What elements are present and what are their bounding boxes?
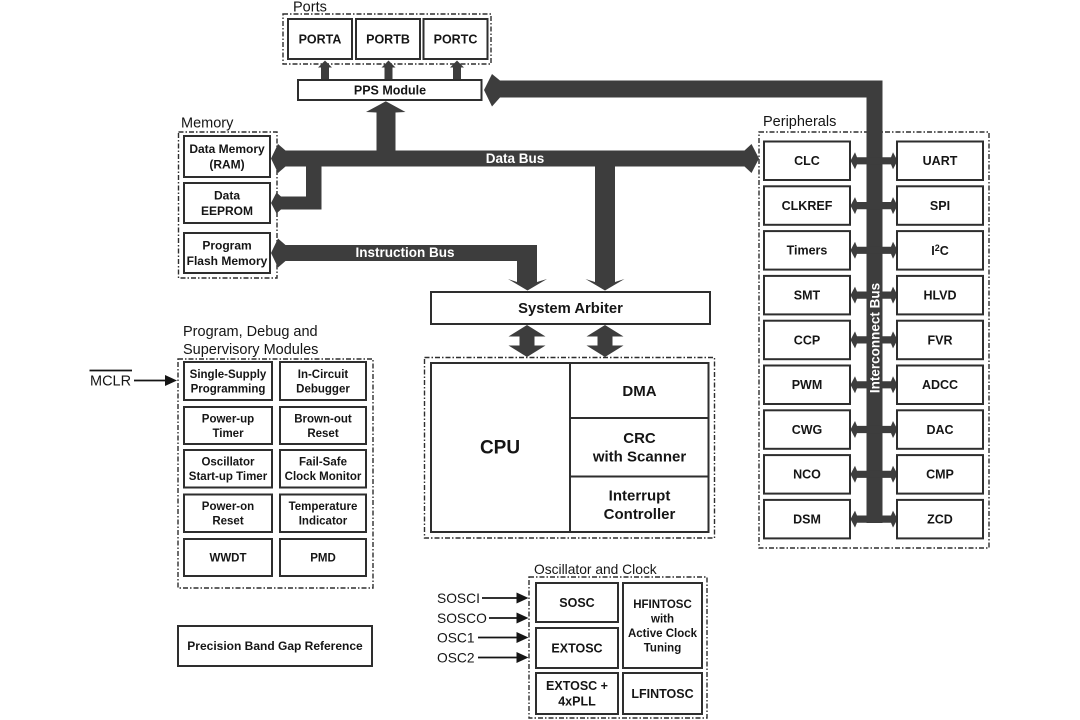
svg-text:Program, Debug and: Program, Debug and [183, 324, 318, 340]
svg-text:Temperature: Temperature [289, 501, 358, 513]
svg-text:MCLR: MCLR [90, 374, 131, 390]
svg-text:Timer: Timer [212, 428, 244, 440]
svg-text:Fail-Safe: Fail-Safe [299, 457, 347, 469]
svg-text:with Scanner: with Scanner [592, 449, 687, 466]
svg-text:EXTOSC +: EXTOSC + [546, 679, 608, 693]
svg-text:FVR: FVR [928, 333, 953, 347]
svg-text:Power-on: Power-on [202, 501, 254, 513]
svg-text:SOSCO: SOSCO [437, 611, 487, 626]
svg-text:Timers: Timers [787, 244, 828, 258]
svg-text:Reset: Reset [307, 428, 338, 440]
svg-text:Reset: Reset [212, 516, 243, 528]
svg-text:Flash Memory: Flash Memory [187, 254, 268, 268]
svg-text:Program: Program [202, 238, 251, 252]
svg-text:CLKREF: CLKREF [782, 199, 833, 213]
svg-text:HLVD: HLVD [923, 289, 956, 303]
svg-text:Oscillator: Oscillator [201, 457, 255, 469]
svg-text:Data Bus: Data Bus [486, 151, 545, 166]
svg-text:CCP: CCP [794, 333, 820, 347]
svg-text:CMP: CMP [926, 468, 954, 482]
svg-text:CRC: CRC [623, 430, 656, 447]
svg-text:ZCD: ZCD [927, 513, 953, 527]
svg-text:Power-up: Power-up [202, 413, 254, 425]
svg-text:Programming: Programming [191, 383, 266, 395]
svg-text:NCO: NCO [793, 468, 821, 482]
svg-text:PPS Module: PPS Module [354, 83, 426, 97]
svg-text:LFINTOSC: LFINTOSC [631, 687, 693, 701]
svg-text:CPU: CPU [480, 438, 520, 459]
svg-text:Indicator: Indicator [299, 516, 348, 528]
svg-text:(RAM): (RAM) [209, 157, 244, 171]
svg-text:EEPROM: EEPROM [201, 204, 253, 218]
svg-text:Ports: Ports [293, 0, 327, 16]
svg-text:Oscillator and Clock: Oscillator and Clock [534, 562, 657, 577]
svg-text:Peripherals: Peripherals [763, 114, 836, 130]
svg-text:DMA: DMA [622, 383, 656, 400]
svg-text:DAC: DAC [926, 423, 953, 437]
svg-text:Memory: Memory [181, 116, 234, 132]
svg-text:PWM: PWM [792, 378, 823, 392]
svg-text:PORTC: PORTC [434, 32, 478, 46]
svg-text:Precision Band Gap Reference: Precision Band Gap Reference [187, 639, 363, 653]
svg-text:Tuning: Tuning [644, 642, 681, 654]
svg-text:OSC1: OSC1 [437, 630, 475, 645]
svg-text:Data Memory: Data Memory [189, 142, 265, 156]
svg-text:DSM: DSM [793, 513, 821, 527]
svg-text:PMD: PMD [310, 553, 336, 565]
svg-text:PORTA: PORTA [299, 32, 342, 46]
svg-text:SMT: SMT [794, 289, 821, 303]
svg-text:ADCC: ADCC [922, 378, 958, 392]
svg-text:with: with [650, 613, 674, 625]
svg-text:In-Circuit: In-Circuit [298, 369, 349, 381]
svg-text:EXTOSC: EXTOSC [551, 641, 602, 655]
svg-text:SPI: SPI [930, 199, 950, 213]
svg-text:Start-up Timer: Start-up Timer [189, 471, 268, 483]
svg-text:CLC: CLC [794, 154, 820, 168]
svg-text:Supervisory Modules: Supervisory Modules [183, 342, 318, 358]
svg-text:HFINTOSC: HFINTOSC [633, 599, 692, 611]
svg-text:Controller: Controller [604, 506, 676, 523]
svg-text:SOSCI: SOSCI [437, 591, 480, 606]
svg-text:Instruction Bus: Instruction Bus [355, 245, 454, 260]
svg-text:CWG: CWG [792, 423, 823, 437]
svg-text:Interconnect Bus: Interconnect Bus [867, 283, 882, 393]
svg-text:Brown-out: Brown-out [294, 413, 352, 425]
svg-text:System Arbiter: System Arbiter [518, 301, 623, 317]
svg-text:Interrupt: Interrupt [609, 487, 671, 504]
svg-text:Single-Supply: Single-Supply [190, 369, 267, 381]
svg-text:UART: UART [923, 154, 958, 168]
svg-text:I2C: I2C [931, 243, 949, 258]
svg-text:Clock Monitor: Clock Monitor [285, 471, 362, 483]
svg-text:Debugger: Debugger [296, 383, 350, 395]
svg-text:WWDT: WWDT [209, 553, 246, 565]
svg-text:4xPLL: 4xPLL [558, 695, 596, 709]
svg-text:Active Clock: Active Clock [628, 628, 698, 640]
svg-text:OSC2: OSC2 [437, 650, 475, 665]
svg-text:Data: Data [214, 188, 240, 202]
svg-text:SOSC: SOSC [559, 596, 594, 610]
svg-text:PORTB: PORTB [366, 32, 410, 46]
